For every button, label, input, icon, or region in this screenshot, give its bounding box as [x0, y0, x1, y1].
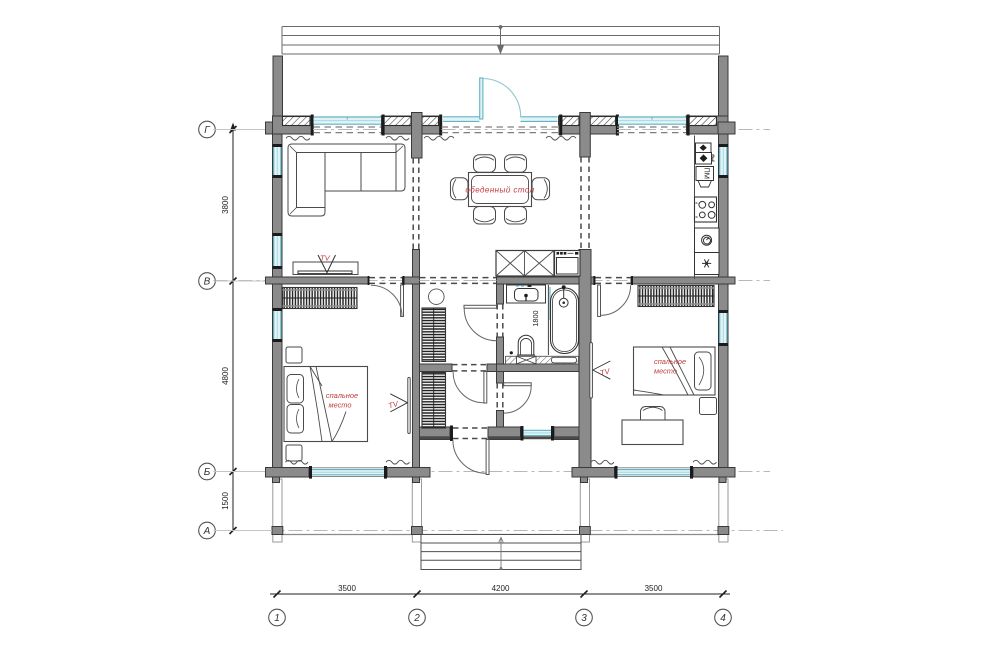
svg-text:место: место — [654, 367, 677, 376]
svg-text:обеденный стол: обеденный стол — [465, 186, 534, 195]
svg-text:4: 4 — [720, 613, 726, 624]
svg-text:3500: 3500 — [338, 584, 356, 593]
svg-text:TV: TV — [320, 254, 331, 263]
svg-text:ПМ: ПМ — [703, 167, 712, 179]
svg-text:2: 2 — [413, 613, 420, 624]
svg-text:спальное: спальное — [326, 391, 358, 400]
svg-text:1800: 1800 — [531, 310, 540, 326]
svg-text:спальное: спальное — [654, 357, 686, 366]
svg-text:4800: 4800 — [221, 367, 230, 385]
svg-text:Б: Б — [204, 467, 211, 478]
svg-text:4200: 4200 — [492, 584, 510, 593]
svg-text:1500: 1500 — [221, 492, 230, 510]
svg-text:1: 1 — [274, 613, 280, 624]
svg-text:В: В — [204, 277, 211, 288]
svg-text:место: место — [329, 401, 352, 410]
svg-text:3800: 3800 — [221, 196, 230, 214]
svg-text:3500: 3500 — [645, 584, 663, 593]
svg-text:А: А — [203, 526, 211, 537]
svg-text:3: 3 — [581, 613, 587, 624]
